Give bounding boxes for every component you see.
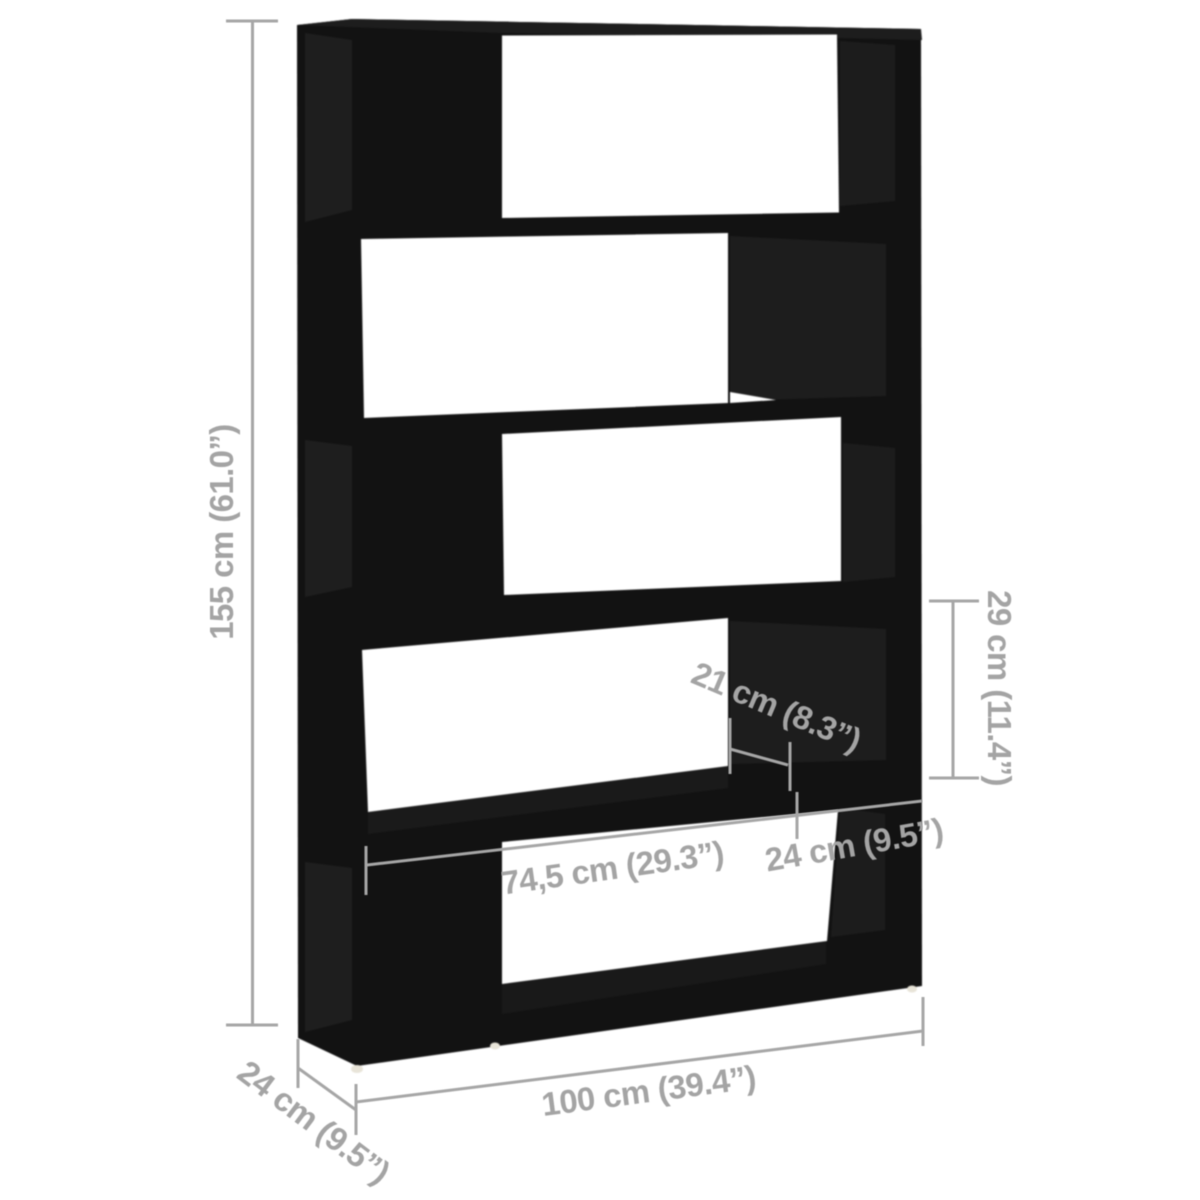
svg-text:29 cm (11.4”): 29 cm (11.4”): [981, 590, 1018, 786]
svg-text:155 cm (61.0”): 155 cm (61.0”): [203, 424, 240, 639]
